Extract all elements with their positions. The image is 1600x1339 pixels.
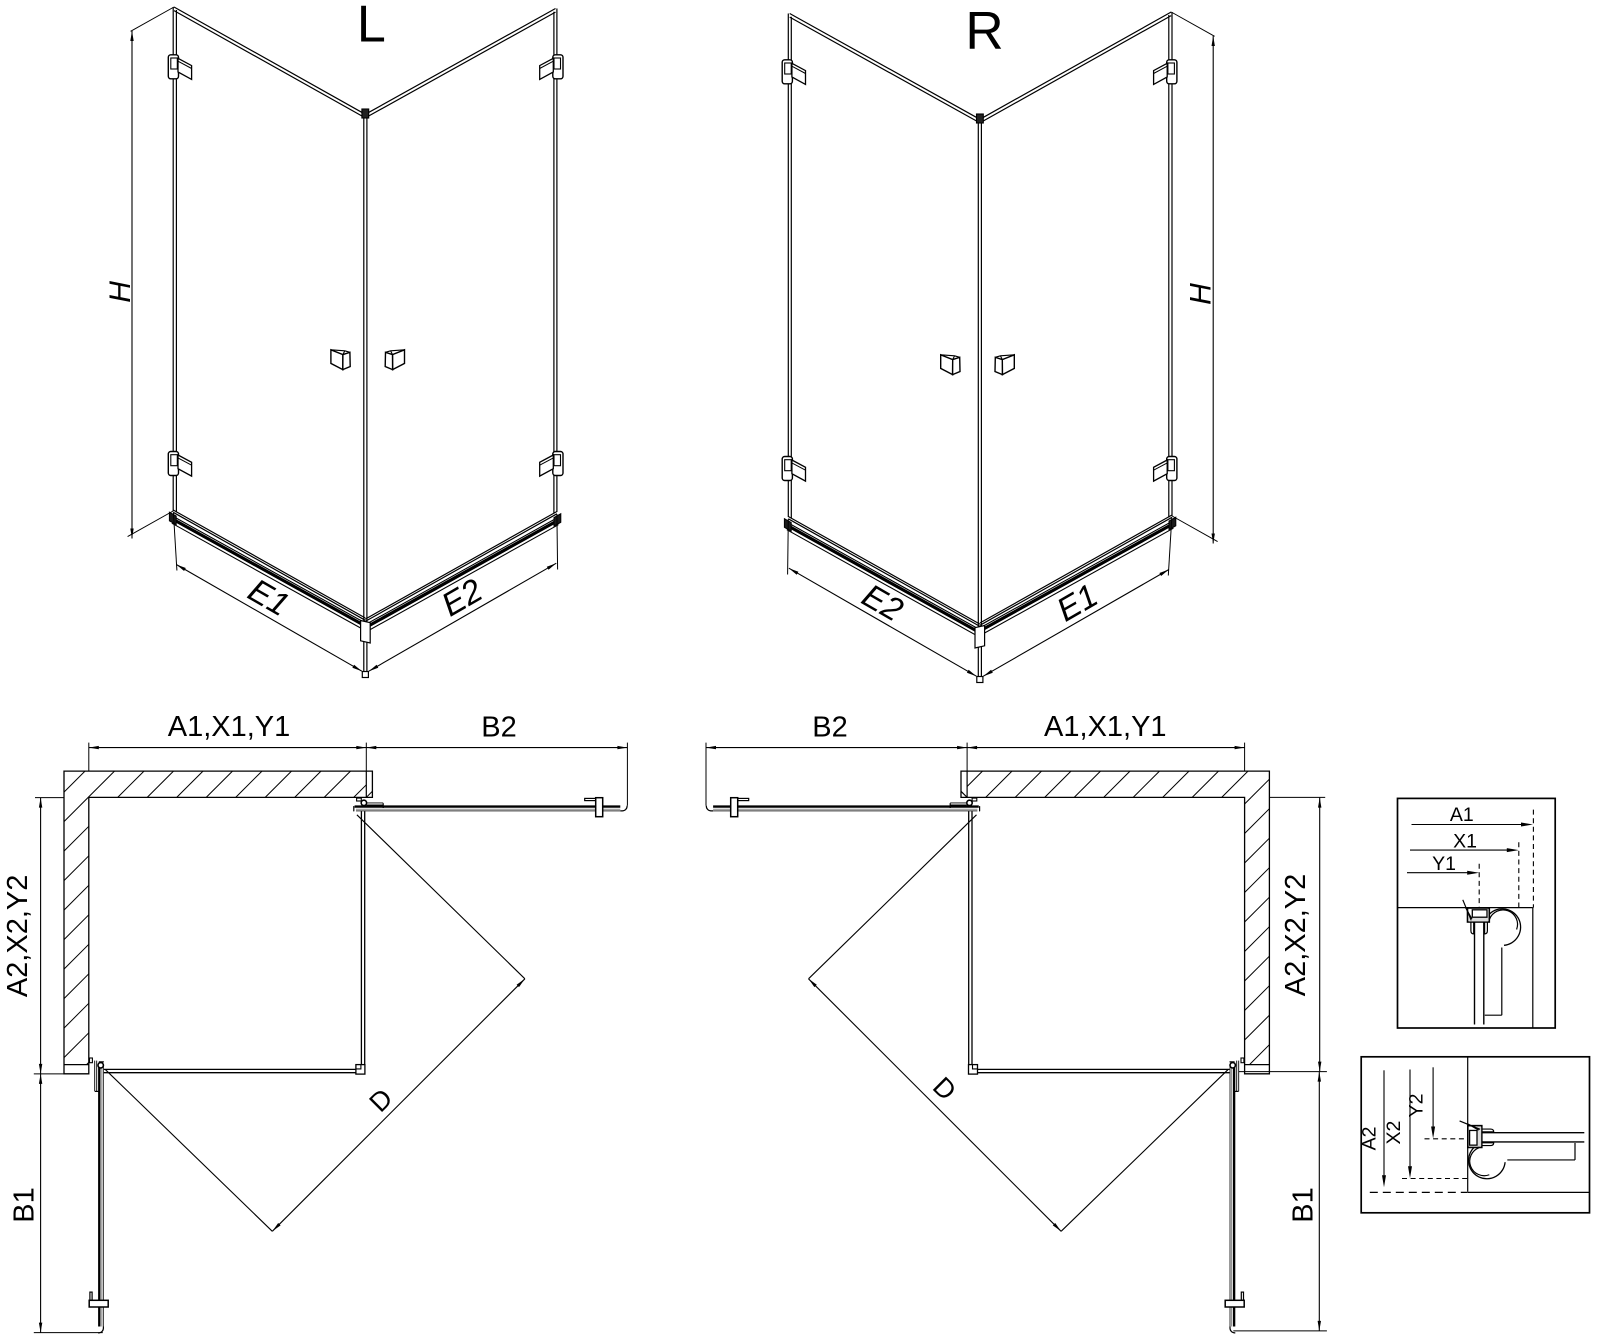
svg-text:A1,X1,Y1: A1,X1,Y1 [168,711,291,743]
svg-text:H: H [104,281,137,303]
svg-text:B2: B2 [481,711,516,743]
svg-text:Y2: Y2 [1405,1093,1427,1117]
svg-text:B2: B2 [812,711,847,743]
svg-text:A2,X2,Y2: A2,X2,Y2 [2,875,34,998]
svg-text:Y1: Y1 [1432,853,1456,875]
svg-text:A1,X1,Y1: A1,X1,Y1 [1044,711,1167,743]
svg-text:A2,X2,Y2: A2,X2,Y2 [1280,874,1312,997]
svg-text:L: L [357,0,386,54]
svg-text:A1: A1 [1450,804,1474,826]
svg-text:R: R [965,2,1003,61]
svg-text:H: H [1184,283,1217,305]
svg-text:B1: B1 [9,1187,41,1222]
svg-text:X1: X1 [1453,830,1477,852]
svg-text:B1: B1 [1287,1187,1319,1222]
svg-text:A2: A2 [1358,1127,1380,1151]
svg-text:X2: X2 [1383,1121,1405,1145]
